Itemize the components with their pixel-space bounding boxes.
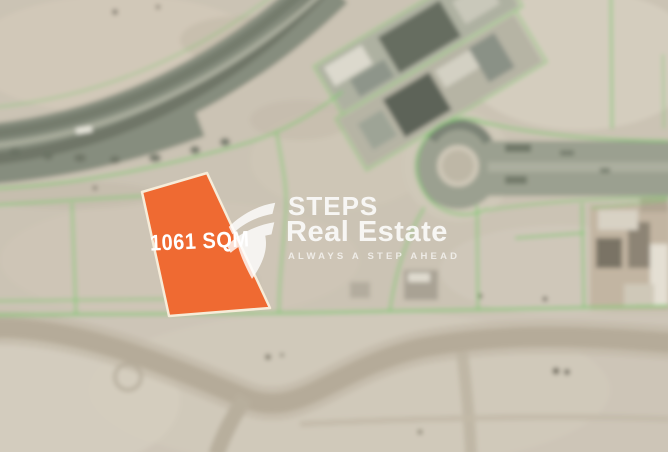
brand-tagline: ALWAYS A STEP AHEAD	[288, 252, 460, 262]
brand-name-bottom: Real Estate	[286, 218, 448, 247]
steps-logo-icon	[226, 196, 278, 282]
listing-map-image: 1061 SQM STEPS Real Estate ALWAYS A STEP…	[0, 0, 668, 452]
brand-watermark: STEPS Real Estate ALWAYS A STEP AHEAD	[226, 193, 476, 273]
